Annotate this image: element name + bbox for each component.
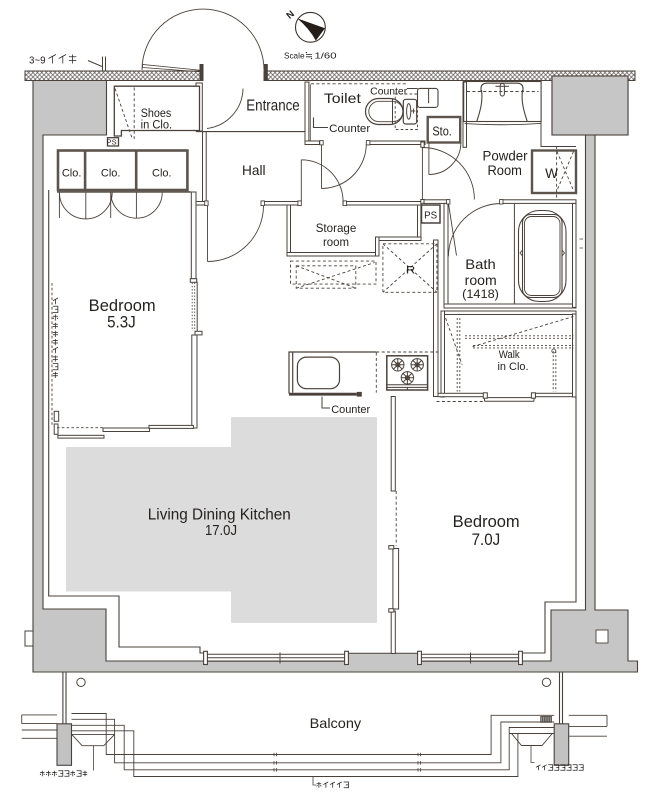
svg-text:Clo.: Clo. xyxy=(152,167,172,179)
svg-text:(1418): (1418) xyxy=(462,289,499,301)
svg-text:PS: PS xyxy=(107,138,117,147)
svg-text:Counter: Counter xyxy=(370,87,408,98)
svg-text:Balcony: Balcony xyxy=(310,716,362,731)
svg-text:Room: Room xyxy=(487,162,522,178)
svg-text:Entrance: Entrance xyxy=(246,97,300,114)
svg-text:Bedroom: Bedroom xyxy=(89,297,156,315)
svg-text:Walk: Walk xyxy=(499,349,520,361)
svg-text:Bath: Bath xyxy=(465,256,496,272)
svg-text:Toilet: Toilet xyxy=(324,91,361,106)
svg-text:Scale: Scale xyxy=(284,52,305,61)
svg-text:Clo.: Clo. xyxy=(62,167,82,179)
svg-text:3~9: 3~9 xyxy=(29,56,46,67)
svg-text:17.0J: 17.0J xyxy=(205,522,237,539)
svg-text:Bedroom: Bedroom xyxy=(453,513,520,531)
svg-text:Sto.: Sto. xyxy=(432,124,452,139)
svg-text:7.0J: 7.0J xyxy=(472,531,501,549)
svg-text:1/60: 1/60 xyxy=(315,52,338,61)
svg-text:in Clo.: in Clo. xyxy=(498,361,529,373)
svg-text:Hall: Hall xyxy=(242,162,266,178)
svg-text:Powder: Powder xyxy=(483,148,528,164)
svg-text:in Clo.: in Clo. xyxy=(141,117,173,131)
svg-text:Living Dining Kitchen: Living Dining Kitchen xyxy=(148,507,291,524)
svg-text:Counter: Counter xyxy=(331,404,370,416)
svg-text:PS: PS xyxy=(424,210,437,222)
svg-text:Storage: Storage xyxy=(316,221,357,235)
svg-text:W: W xyxy=(545,166,558,181)
svg-text:Clo.: Clo. xyxy=(101,167,121,179)
svg-text:Counter: Counter xyxy=(329,123,370,135)
svg-text:room: room xyxy=(323,235,349,249)
svg-text:room: room xyxy=(465,272,497,288)
svg-text:5.3J: 5.3J xyxy=(107,314,136,332)
svg-text:R: R xyxy=(406,265,415,277)
